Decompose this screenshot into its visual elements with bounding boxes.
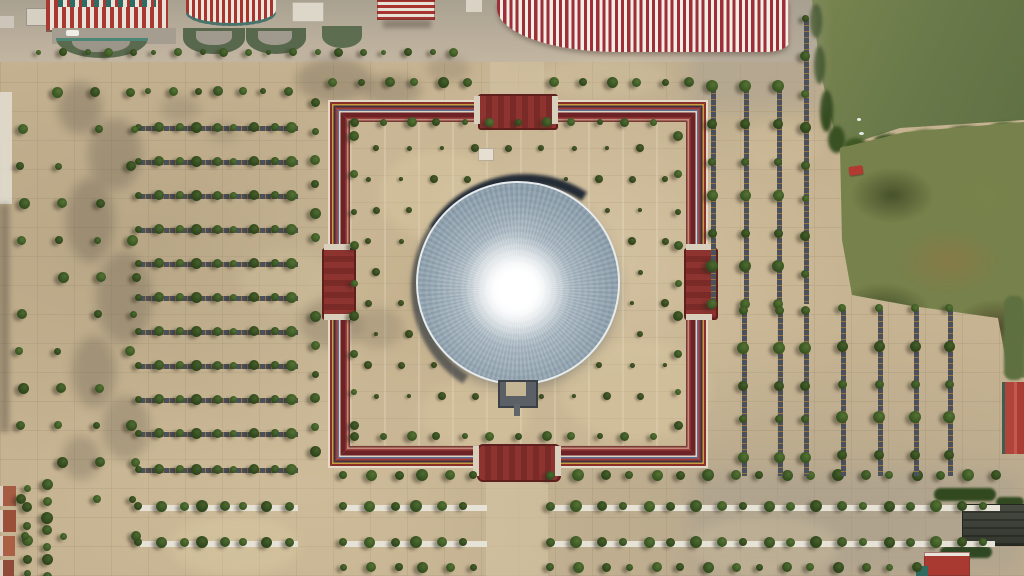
white-roof	[466, 0, 482, 12]
tree	[446, 563, 455, 572]
tree	[43, 572, 52, 576]
white-roof	[292, 2, 324, 22]
shrub	[398, 300, 404, 306]
gate-west-cap	[324, 244, 350, 250]
tree	[94, 310, 102, 318]
tree	[55, 163, 62, 170]
tree	[349, 131, 359, 141]
tree	[772, 260, 784, 272]
hut-small	[0, 16, 14, 28]
tree	[93, 495, 101, 503]
tree	[249, 224, 259, 234]
tree	[56, 383, 66, 393]
shrub	[637, 393, 644, 400]
tree	[786, 502, 795, 511]
tree	[135, 260, 142, 267]
tree	[800, 231, 810, 241]
tree	[802, 195, 809, 202]
gate-north-cap	[474, 96, 480, 124]
tree	[169, 87, 178, 96]
tree	[756, 564, 763, 571]
shrub	[399, 177, 403, 181]
tree	[463, 78, 472, 87]
walkway-bottom	[486, 468, 548, 576]
tree	[862, 563, 871, 572]
tree	[132, 273, 141, 282]
tree	[339, 538, 347, 546]
tree	[176, 293, 184, 301]
tree	[22, 502, 32, 512]
tree	[874, 341, 885, 352]
tree	[151, 50, 156, 55]
tree	[366, 562, 376, 572]
tree	[912, 562, 922, 572]
tree	[174, 48, 182, 56]
tree	[154, 258, 164, 268]
tree	[410, 78, 418, 86]
tree	[662, 79, 669, 86]
tree	[626, 564, 633, 571]
tree	[739, 306, 748, 315]
shrub	[374, 332, 378, 336]
tree	[802, 15, 809, 22]
tree	[310, 311, 321, 322]
tree	[230, 294, 237, 301]
car-white	[66, 30, 79, 36]
tree	[249, 326, 259, 336]
tree	[650, 119, 657, 126]
tree	[213, 86, 223, 96]
tree	[674, 170, 682, 178]
tree	[549, 77, 559, 87]
shrub	[366, 177, 371, 182]
tree	[597, 501, 607, 511]
tree	[230, 466, 237, 473]
tree	[936, 471, 945, 480]
tree	[774, 452, 785, 463]
tree	[810, 500, 822, 512]
tree	[546, 563, 554, 571]
tree	[437, 537, 447, 547]
tree	[176, 395, 184, 403]
dome-entrance-inner	[506, 382, 526, 396]
tree	[644, 537, 655, 548]
tree	[930, 500, 942, 512]
tree	[176, 259, 184, 267]
tree	[125, 346, 135, 356]
tree	[875, 304, 883, 312]
shrub	[572, 394, 576, 398]
tree	[358, 79, 365, 86]
awning-accent	[58, 0, 156, 7]
tree	[707, 119, 717, 129]
tree	[764, 501, 775, 512]
tree	[176, 225, 184, 233]
white-strip-left	[0, 92, 12, 204]
shrub	[629, 176, 636, 183]
tree	[196, 536, 208, 548]
tree	[239, 87, 247, 95]
tree	[41, 512, 53, 524]
tree	[261, 501, 272, 512]
tree	[310, 446, 321, 457]
tree	[271, 191, 279, 199]
tree	[196, 500, 208, 512]
tree	[515, 119, 522, 126]
tree	[910, 341, 921, 352]
tree	[245, 49, 252, 56]
tree	[675, 209, 681, 215]
tree	[191, 292, 202, 303]
tree	[230, 396, 237, 403]
tree	[339, 502, 347, 510]
tree	[127, 235, 138, 246]
tree	[991, 470, 1001, 480]
tree	[570, 536, 582, 548]
tree	[366, 470, 377, 481]
tree	[59, 48, 67, 56]
tree	[311, 341, 320, 350]
tree	[738, 452, 749, 463]
field-right-strip	[1004, 296, 1024, 380]
tree	[191, 394, 202, 405]
pavement-stain	[426, 56, 470, 82]
tree	[957, 537, 967, 547]
tree	[690, 536, 702, 548]
tree	[154, 190, 164, 200]
tree	[597, 537, 607, 547]
shrub	[538, 145, 544, 151]
tree	[43, 543, 51, 551]
tree	[607, 77, 618, 88]
tree	[95, 384, 104, 393]
tree	[131, 458, 140, 467]
tree	[462, 119, 468, 125]
pavement-stain	[540, 58, 670, 98]
tree	[130, 49, 137, 56]
tree	[703, 562, 714, 573]
tree	[350, 170, 358, 178]
tree	[764, 537, 775, 548]
tree	[885, 471, 893, 479]
tree	[134, 502, 142, 510]
tree	[445, 470, 455, 480]
tree	[739, 502, 747, 510]
tree	[219, 48, 228, 57]
tree	[213, 123, 222, 132]
tree	[42, 479, 53, 490]
tree	[249, 190, 259, 200]
tree	[126, 161, 136, 171]
tree	[873, 411, 885, 423]
tree	[620, 432, 629, 441]
tree	[135, 294, 142, 301]
tree	[449, 48, 458, 57]
tree	[21, 532, 29, 540]
tree	[350, 421, 359, 430]
tree	[55, 236, 63, 244]
tree	[602, 563, 611, 572]
tree	[180, 538, 189, 547]
tree	[135, 430, 142, 437]
tree	[286, 464, 297, 475]
tree	[249, 292, 259, 302]
tree	[230, 260, 237, 267]
tree	[462, 433, 468, 439]
tree	[385, 77, 395, 87]
shrub	[365, 238, 371, 244]
tree	[271, 429, 279, 437]
tree	[884, 501, 895, 512]
tree	[350, 118, 359, 127]
tree	[650, 433, 657, 440]
tree	[644, 501, 655, 512]
tree	[328, 78, 337, 87]
tree	[944, 341, 955, 352]
tree	[676, 471, 685, 480]
tree	[249, 156, 259, 166]
tree	[176, 191, 184, 199]
tree	[741, 229, 750, 238]
tree	[156, 501, 167, 512]
tree	[16, 421, 25, 430]
tree	[135, 396, 142, 403]
tree	[859, 502, 867, 510]
tree	[220, 501, 230, 511]
tree	[459, 538, 467, 546]
tree	[391, 502, 400, 511]
tree	[738, 381, 748, 391]
shrub	[405, 330, 413, 338]
tree	[154, 156, 164, 166]
tree	[176, 157, 184, 165]
tree	[675, 280, 682, 287]
tree	[391, 538, 400, 547]
tree	[54, 348, 61, 355]
tree	[154, 292, 164, 302]
tree	[801, 270, 809, 278]
tree	[430, 49, 436, 55]
tree	[800, 381, 810, 391]
tree	[875, 380, 884, 389]
tree	[800, 122, 811, 133]
red-roof-hut	[924, 552, 970, 576]
tree	[837, 450, 847, 460]
tree	[674, 350, 682, 358]
gate-east-cap	[686, 244, 712, 250]
tree	[42, 554, 53, 565]
tree	[909, 411, 921, 423]
pavement-stain	[72, 336, 116, 408]
tree	[95, 125, 103, 133]
tree	[469, 471, 477, 479]
shrub	[365, 300, 372, 307]
pavement-stain	[160, 96, 200, 122]
tree	[859, 538, 867, 546]
tree	[135, 328, 142, 335]
tree	[740, 119, 750, 129]
tree	[154, 428, 164, 438]
tree	[739, 415, 747, 423]
tree	[775, 415, 783, 423]
shrub	[364, 361, 372, 369]
hedge	[934, 488, 996, 501]
tree	[542, 431, 552, 441]
tree	[350, 241, 359, 250]
shrub	[407, 394, 411, 398]
shrub	[661, 299, 669, 307]
tree	[311, 180, 319, 188]
tree	[230, 124, 237, 131]
tree	[364, 537, 375, 548]
pavement-stain	[62, 436, 100, 480]
tree	[52, 87, 63, 98]
tree	[310, 393, 320, 403]
tree	[837, 501, 847, 511]
tree	[837, 537, 847, 547]
tree	[191, 360, 202, 371]
stall	[0, 510, 16, 532]
tree	[249, 258, 259, 268]
tree	[310, 208, 321, 219]
tree	[782, 470, 793, 481]
tree	[775, 306, 784, 315]
striped-pavilion	[377, 0, 435, 20]
tree	[85, 49, 91, 55]
tree	[266, 50, 271, 55]
tree	[339, 471, 347, 479]
tree	[213, 259, 222, 268]
red-roof-building-right	[1002, 382, 1024, 454]
tree	[906, 538, 915, 547]
tree	[732, 563, 741, 572]
tree	[673, 131, 683, 141]
shrub	[636, 144, 644, 152]
tree	[249, 464, 259, 474]
tree	[737, 342, 749, 354]
tree	[601, 470, 611, 480]
stall	[0, 560, 14, 576]
tree	[806, 563, 814, 571]
tree	[24, 570, 31, 576]
tree	[249, 394, 259, 404]
curved-striped-roof	[186, 0, 276, 26]
tree	[673, 311, 683, 321]
tree	[884, 537, 895, 548]
tree	[95, 457, 105, 467]
tree	[213, 395, 222, 404]
tree	[620, 118, 629, 127]
tree	[349, 311, 359, 321]
tree	[271, 123, 279, 131]
tree	[432, 432, 440, 440]
dark-streak-left	[0, 204, 9, 432]
tree	[191, 428, 202, 439]
tree	[57, 457, 68, 468]
gate-south-cap	[555, 446, 561, 476]
tree	[886, 564, 893, 571]
tree	[567, 432, 575, 440]
tree	[717, 537, 727, 547]
shrub	[663, 363, 667, 367]
tree	[731, 470, 741, 480]
tree	[438, 77, 449, 88]
tree	[230, 192, 237, 199]
tree	[632, 78, 641, 87]
tree	[286, 360, 297, 371]
tree	[573, 562, 584, 573]
tree	[126, 420, 137, 431]
shrub	[373, 207, 380, 214]
tree	[271, 293, 279, 301]
shrub	[399, 239, 404, 244]
tree	[213, 293, 222, 302]
tree	[16, 162, 24, 170]
tree	[315, 49, 321, 55]
tree	[135, 226, 142, 233]
tree	[310, 155, 320, 165]
tree	[126, 88, 135, 97]
tree	[135, 362, 142, 369]
tree	[351, 209, 357, 215]
tree	[740, 190, 751, 201]
tree	[176, 465, 184, 473]
shrub	[638, 208, 642, 212]
tree	[230, 430, 237, 437]
tree	[135, 466, 142, 473]
shrub	[637, 331, 643, 337]
shrub	[472, 393, 479, 400]
tree	[286, 122, 297, 133]
tree	[271, 157, 279, 165]
plaza-panel	[478, 148, 494, 161]
shrub	[373, 145, 379, 151]
tree	[404, 48, 412, 56]
tree	[579, 78, 587, 86]
shrub	[406, 207, 412, 213]
tree	[684, 77, 694, 87]
garden-bed-inner	[196, 31, 232, 45]
shrub	[407, 146, 412, 151]
stall	[0, 536, 15, 556]
gate-north-cap	[552, 96, 558, 124]
dome-sun-glare	[462, 235, 570, 343]
tree	[364, 501, 375, 512]
tree	[60, 533, 67, 540]
tree	[249, 428, 259, 438]
scrub-field	[836, 116, 1024, 380]
tree	[546, 471, 555, 480]
tree	[131, 531, 141, 541]
tree	[191, 258, 202, 269]
tree	[546, 502, 555, 511]
tree	[17, 309, 27, 319]
shrub	[572, 146, 577, 151]
tree	[312, 371, 319, 378]
tree	[755, 471, 763, 479]
tree	[96, 272, 106, 282]
tree	[801, 415, 809, 423]
tree	[772, 80, 784, 92]
tree	[154, 224, 164, 234]
tree	[261, 537, 272, 548]
tree	[801, 90, 809, 98]
tree	[284, 87, 293, 96]
tree	[239, 502, 247, 510]
tree	[837, 341, 848, 352]
tree	[18, 383, 29, 394]
tree	[57, 198, 67, 208]
